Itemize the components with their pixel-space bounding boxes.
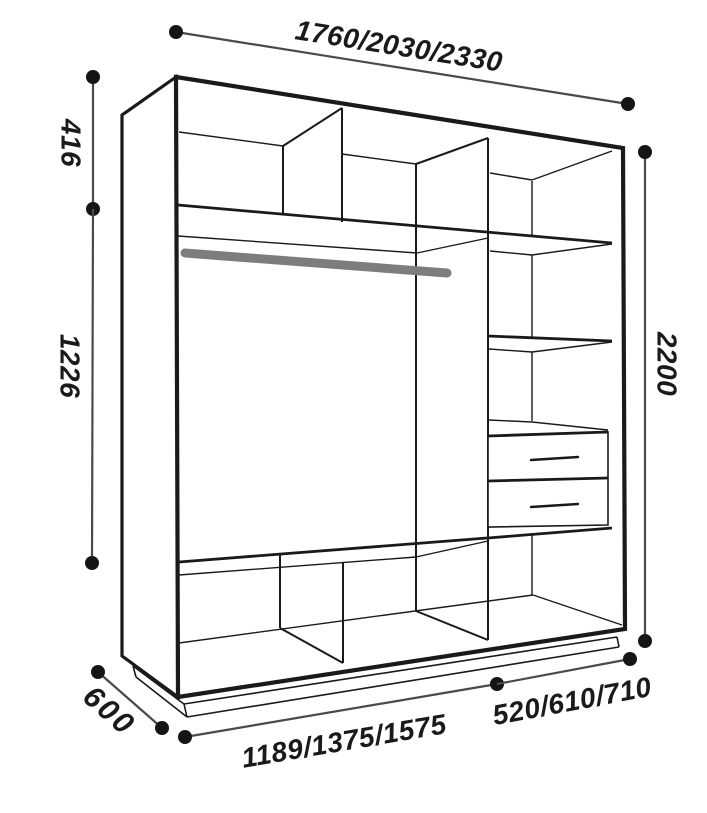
dimension-top-section-height: 416	[56, 70, 101, 216]
dimension-line	[92, 209, 93, 563]
drawer-unit	[488, 432, 608, 527]
dimension-endpoint-dot	[155, 721, 169, 735]
left-section-width-label: 1189/1375/1575	[239, 708, 449, 773]
dimension-endpoint-dot	[178, 730, 192, 744]
overall-height-label: 2200	[652, 331, 683, 396]
dimension-endpoint-dot	[91, 665, 105, 679]
hanging-space-height-label: 1226	[55, 334, 86, 398]
dimension-overall-height: 2200	[638, 145, 683, 648]
wardrobe-dimension-diagram: 1760/2030/2330 416 1226 2200 600 1189/13…	[0, 0, 707, 813]
dimension-endpoint-dot	[85, 556, 99, 570]
wardrobe-drawing	[122, 77, 625, 717]
dimension-endpoint-dot	[638, 634, 652, 648]
dimension-endpoint-dot	[86, 70, 100, 84]
left-side-panel	[122, 77, 178, 697]
dimension-endpoint-dot	[169, 25, 183, 39]
dimension-endpoint-dot	[621, 97, 635, 111]
depth-label: 600	[76, 680, 141, 743]
dimension-endpoint-dot	[638, 145, 652, 159]
dimension-endpoint-dot	[623, 652, 637, 666]
dimension-hanging-space-height: 1226	[55, 209, 100, 570]
top-section-height-label: 416	[56, 118, 87, 167]
page: 1760/2030/2330 416 1226 2200 600 1189/13…	[0, 0, 707, 813]
